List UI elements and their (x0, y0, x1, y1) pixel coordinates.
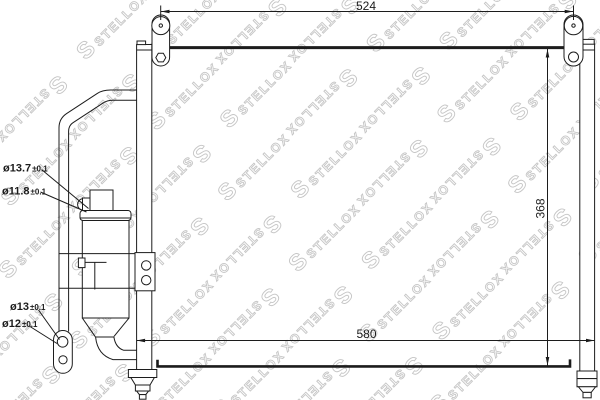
port1-tol: ±0.1 (32, 165, 48, 174)
watermark-item: SSTELLOX (424, 336, 506, 400)
port3-tol: ±0.1 (30, 303, 46, 312)
condenser-drawing-svg: SSTELLOXSSTELLOXSSTELLOXSSTELLOXSSTELLOX… (0, 0, 600, 400)
watermark-item: SSTELLOX (354, 61, 436, 143)
port3-label: ø13±0.1 (10, 301, 46, 313)
watermark-item: SSTELLOX (493, 276, 575, 358)
pipe-flange (54, 331, 73, 374)
left-tank (137, 41, 152, 370)
drier-body (82, 221, 129, 319)
port3-dia: ø13 (10, 301, 29, 313)
watermark-item: SSTELLOX (274, 353, 356, 400)
watermark-item: SSTELLOX (347, 351, 429, 400)
dimension-top-width: 524 (161, 0, 574, 20)
right-mount-bracket (564, 15, 583, 66)
leader-line (30, 327, 57, 344)
watermark-item: SSTELLOX (142, 53, 224, 135)
watermark-item: SSTELLOX (64, 68, 146, 150)
watermark-item: SSTELLOX (502, 117, 584, 199)
port2-tol: ±0.1 (31, 188, 47, 197)
port4-label: ø12±0.1 (2, 318, 38, 330)
left-mount-bracket (152, 15, 170, 66)
watermark-item: SSTELLOX (276, 281, 358, 363)
watermark-item: SSTELLOX (283, 0, 365, 72)
port4-tol: ±0.1 (22, 320, 38, 329)
port2-dia: ø11.8 (2, 186, 30, 198)
right-bottom-fitting (577, 371, 597, 398)
bracket-hole (569, 52, 579, 62)
drier-cap (80, 211, 131, 221)
bracket-hex-hole (156, 53, 166, 62)
watermark-item: SSTELLOX (206, 210, 288, 292)
watermark-item: SSTELLOX (212, 124, 294, 206)
port1-dia: ø13.7 (3, 163, 31, 175)
dim-524-label: 524 (356, 0, 376, 13)
dim-368-label: 368 (534, 198, 548, 218)
left-bottom-fitting (128, 370, 156, 400)
port1-label: ø13.7±0.1 (3, 163, 48, 175)
core-bottom-plate (158, 359, 571, 366)
right-tank (580, 39, 595, 371)
port2-label: ø11.8±0.1 (2, 186, 47, 198)
port4-dia: ø12 (2, 318, 21, 330)
watermark-item: SSTELLOX (0, 202, 75, 284)
watermark-item: SSTELLOX (425, 132, 507, 214)
watermark-item: SSTELLOX (432, 46, 514, 128)
technical-drawing-page: SSTELLOXSSTELLOXSSTELLOXSSTELLOXSSTELLOX… (0, 0, 600, 400)
dim-580-label: 580 (356, 327, 376, 341)
watermark-item: SSTELLOX (283, 195, 365, 277)
